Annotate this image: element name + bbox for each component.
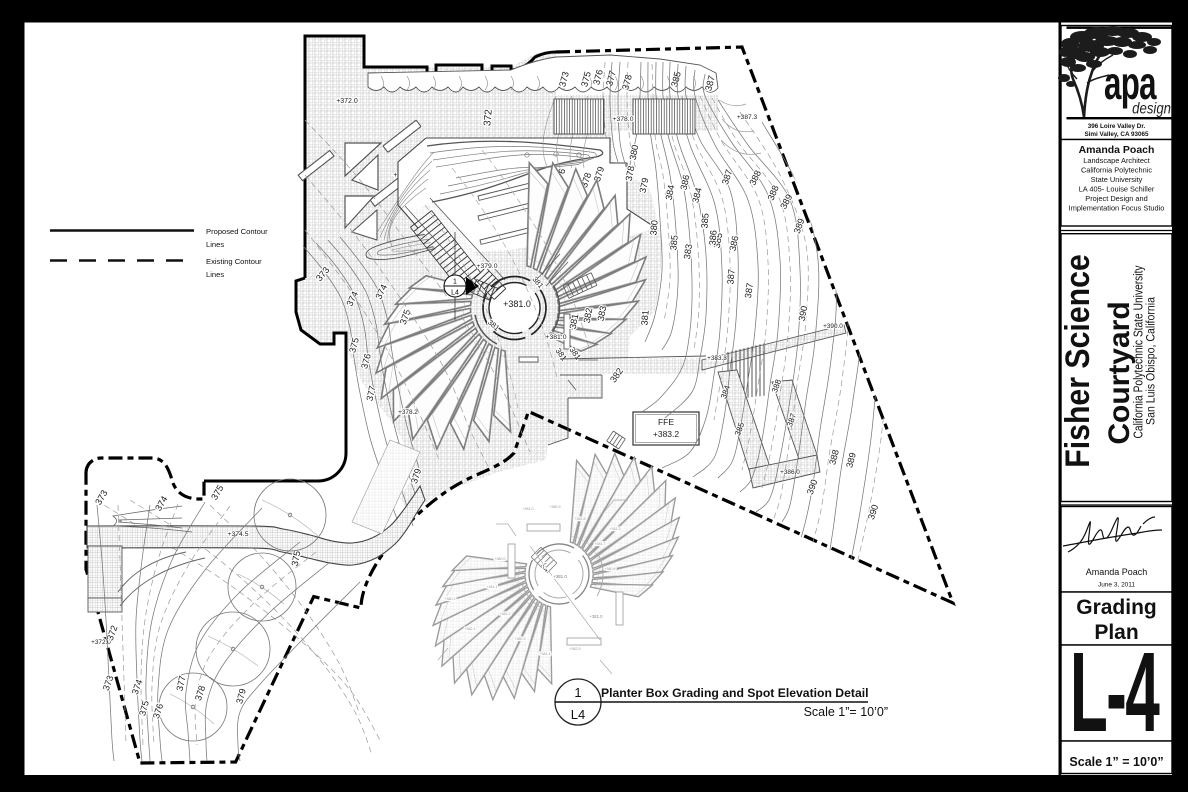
svg-text:396 Loire Valley Dr.: 396 Loire Valley Dr. [1088,123,1146,130]
svg-text:Fisher Science: Fisher Science [1058,254,1096,468]
svg-text:+381.0: +381.0 [522,507,533,511]
svg-text:+381.0: +381.0 [546,334,567,341]
svg-text:+383.2: +383.2 [653,429,680,439]
svg-text:+381.0: +381.0 [503,299,531,309]
svg-text:+378.0: +378.0 [613,116,634,123]
svg-text:+387.3: +387.3 [737,114,758,121]
svg-text:Implementation Focus Studio: Implementation Focus Studio [1069,204,1165,213]
svg-text:+382.5: +382.5 [569,647,580,651]
svg-text:+386.0: +386.0 [780,469,800,476]
svg-text:387: 387 [743,282,755,299]
svg-text:Lines: Lines [206,240,224,249]
svg-text:+380.6: +380.6 [604,567,615,571]
svg-text:+374.5: +374.5 [228,531,249,538]
svg-text:+380.9: +380.9 [549,505,560,509]
svg-text:+390.0: +390.0 [823,323,843,330]
svg-text:Landscape Architect: Landscape Architect [1083,156,1150,165]
svg-text:+381.1: +381.1 [486,585,497,589]
svg-text:San Luis Obispo, California: San Luis Obispo, California [1145,296,1158,425]
svg-text:+382.8: +382.8 [574,517,585,521]
svg-text:L4: L4 [571,707,585,722]
svg-text:L4: L4 [451,290,459,297]
svg-text:1: 1 [453,279,457,286]
svg-text:387: 387 [725,269,736,285]
svg-text:FFE: FFE [658,417,674,427]
svg-text:+380.0: +380.0 [494,557,505,561]
svg-text:+379.0: +379.0 [477,263,498,270]
svg-text:383: 383 [682,243,694,260]
svg-text:385: 385 [668,235,680,251]
svg-text:1: 1 [574,685,581,700]
svg-text:California Polytechnic: California Polytechnic [1081,166,1152,175]
svg-text:design: design [1132,101,1171,118]
svg-text:381: 381 [639,310,650,326]
svg-text:Simi Valley, CA 93065: Simi Valley, CA 93065 [1084,131,1149,138]
svg-text:+382.1: +382.1 [464,627,475,631]
svg-text:Scale 1”= 10’0”: Scale 1”= 10’0” [804,705,888,719]
svg-text:+381.3: +381.3 [609,527,620,531]
svg-text:State University: State University [1091,175,1143,184]
svg-text:Proposed Contour: Proposed Contour [206,227,268,236]
svg-text:380: 380 [648,220,659,236]
svg-text:386: 386 [707,230,718,246]
svg-text:+381.0: +381.0 [590,614,604,619]
svg-text:California Polytechnic State U: California Polytechnic State University [1133,265,1146,438]
svg-text:Courtyard: Courtyard [1103,301,1136,444]
svg-text:Project Design and: Project Design and [1085,194,1147,203]
svg-text:Amanda Poach: Amanda Poach [1079,144,1155,156]
svg-text:+382.2: +382.2 [499,612,510,616]
svg-text:+372.0: +372.0 [336,98,358,105]
svg-text:LA 405- Louise Schiller: LA 405- Louise Schiller [1079,185,1155,194]
svg-text:Scale 1” = 10’0”: Scale 1” = 10’0” [1069,755,1163,769]
svg-text:+381.0: +381.0 [553,574,567,579]
svg-text:Planter Box Grading and Spot E: Planter Box Grading and Spot Elevation D… [601,686,869,700]
svg-text:372: 372 [482,109,494,127]
svg-text:L-4: L-4 [1070,629,1160,755]
svg-text:+380.3: +380.3 [514,637,525,641]
svg-text:+380.2: +380.2 [444,597,455,601]
svg-text:⤹: ⤹ [542,562,548,572]
svg-text:June 3, 2011: June 3, 2011 [1098,582,1135,589]
svg-text:385: 385 [699,213,710,229]
svg-text:+378.2: +378.2 [398,409,418,416]
svg-text:+381.4: +381.4 [539,652,550,656]
svg-text:Amanda Poach: Amanda Poach [1086,567,1148,577]
svg-text:Grading: Grading [1076,596,1157,619]
svg-text:+381.7: +381.7 [594,542,605,546]
svg-text:Existing Contour: Existing Contour [206,257,262,266]
svg-text:Lines: Lines [206,270,224,279]
